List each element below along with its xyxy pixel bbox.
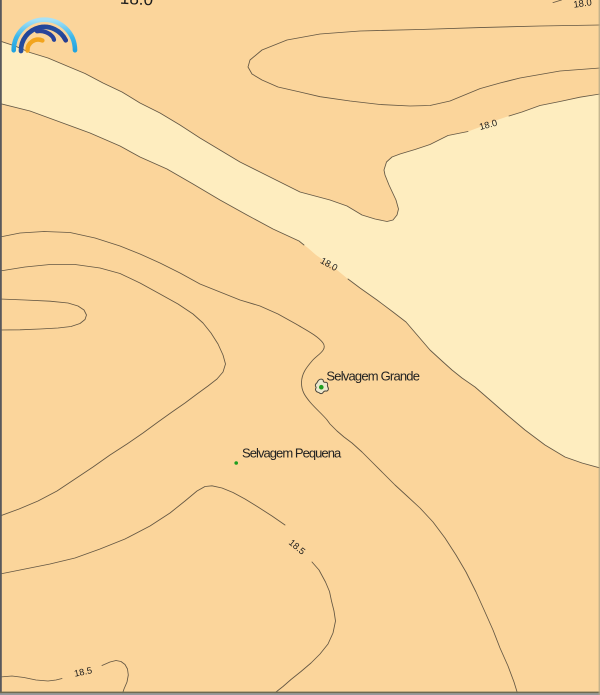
svg-text:Selvagem Grande: Selvagem Grande [326, 369, 419, 384]
svg-text:Selvagem Pequena: Selvagem Pequena [242, 445, 342, 460]
